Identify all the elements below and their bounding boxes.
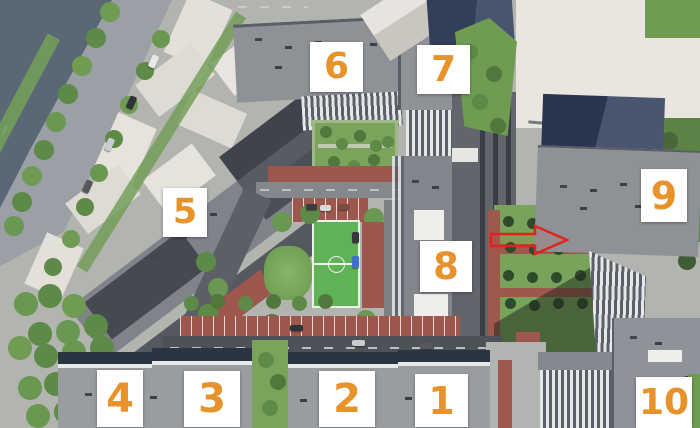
annotation-arrow-icon — [489, 224, 569, 256]
car — [306, 204, 317, 210]
parking-stalls — [180, 316, 460, 336]
car — [352, 232, 359, 243]
car — [126, 95, 138, 110]
building-marker-3: 3 — [184, 371, 240, 427]
building-10-west-facade — [540, 368, 620, 428]
car — [420, 343, 433, 349]
building-marker-1: 1 — [415, 374, 468, 427]
car — [352, 340, 365, 346]
roadside-trees — [152, 30, 170, 48]
building-marker-7: 7 — [417, 45, 470, 94]
roof-vents — [85, 393, 92, 396]
roof-vents — [560, 185, 567, 188]
car — [338, 204, 349, 210]
grass-patch — [645, 0, 700, 38]
brick-path — [498, 360, 512, 428]
building-marker-4: 4 — [97, 370, 143, 427]
garden-path — [318, 144, 392, 148]
kiosk-roof — [452, 148, 478, 162]
paved-yard — [486, 342, 546, 428]
field-center-circle — [328, 256, 345, 273]
building-marker-9: 9 — [641, 169, 687, 222]
building-marker-6: 6 — [310, 42, 363, 92]
playground — [264, 246, 312, 300]
street-trees — [184, 296, 199, 311]
gap-trees — [258, 352, 274, 368]
car — [290, 325, 303, 331]
brick-parking — [362, 222, 384, 308]
roof-structure — [414, 294, 448, 318]
roof-vents — [150, 255, 157, 258]
riverside-trees — [100, 2, 120, 22]
car — [320, 205, 331, 211]
building-marker-8: 8 — [420, 241, 472, 292]
roof-vents — [412, 180, 419, 183]
roof-vents — [630, 336, 637, 339]
masterplan-render: 1 2 3 4 5 6 7 8 9 10 — [0, 0, 700, 428]
building-10-wing-roof — [538, 352, 622, 370]
roof-vents — [255, 38, 262, 41]
roof-structure — [414, 210, 444, 240]
building-marker-5: 5 — [163, 188, 207, 237]
building-8-west-facade — [392, 156, 404, 324]
park-trees — [14, 292, 38, 316]
parking-stalls — [238, 6, 308, 8]
roof-structure — [648, 350, 682, 362]
garden-bushes — [320, 126, 332, 138]
car — [352, 256, 359, 268]
building-marker-2: 2 — [319, 371, 375, 427]
courtyard-trees — [196, 252, 216, 272]
building-marker-10: 10 — [636, 377, 692, 428]
